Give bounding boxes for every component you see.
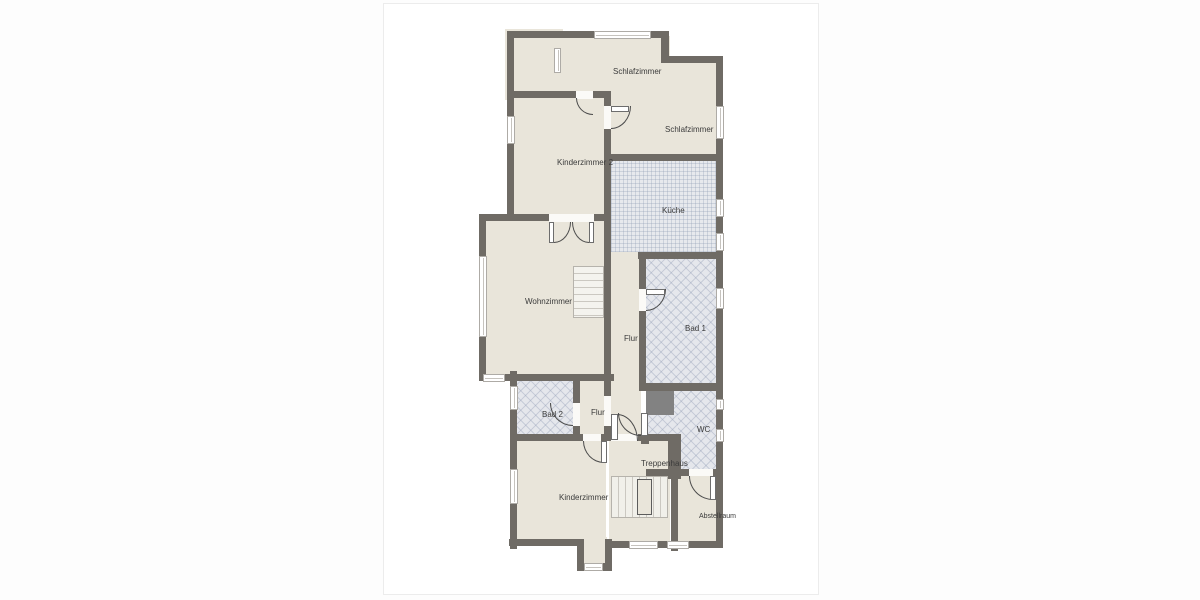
window [716,199,724,217]
wall-segment [606,154,723,161]
wall-segment [639,311,646,391]
wall-segment [604,91,611,106]
wall-segment [713,469,723,476]
window [667,541,689,549]
wall-segment [559,91,576,98]
window [554,48,561,73]
wall-segment [661,56,723,63]
window [510,469,518,504]
window [716,233,724,251]
wall-segment [573,378,580,403]
door-leaf [646,289,665,295]
window [584,563,603,571]
screenshot-root: { "page": { "card": {"x": 383, "y": 3, "… [0,0,1200,600]
window [507,116,515,144]
window [594,31,651,39]
wall-segment [511,434,583,441]
room-bad-1 [644,257,718,385]
door-leaf [601,441,607,463]
stair-core [637,479,652,515]
door-opening [604,396,611,426]
wall-segment [507,91,564,98]
door-leaf [611,414,618,440]
window [716,106,724,139]
room-flur [609,252,641,440]
floorplan-page: SchlafzimmerSchlafzimmerKinderzimmer 2Kü… [383,3,819,595]
wall-segment [604,221,611,381]
door-opening [639,289,646,311]
wall-segment [479,214,549,221]
door-opening [573,403,580,426]
stairs [573,266,604,318]
shaft [646,389,674,415]
door-leaf [710,476,716,500]
door-opening [604,106,611,129]
window [479,256,487,337]
window [629,541,658,549]
door-opening [549,214,594,222]
window [510,386,518,410]
window [716,399,724,410]
door-leaf [611,106,629,112]
floorplan-canvas: SchlafzimmerSchlafzimmerKinderzimmer 2Kü… [384,4,818,594]
window [716,288,724,309]
wall-segment [639,259,646,289]
wall-segment [509,539,584,546]
wall-segment [646,469,689,476]
wall-segment [604,129,611,221]
door-opening [583,434,601,441]
wall-segment [638,252,723,259]
window [483,374,505,382]
door-leaf [589,222,594,243]
wall-segment [594,214,606,221]
wall-segment [671,476,678,551]
door-leaf [641,413,648,436]
door-opening [689,469,713,476]
window [716,429,724,442]
wall-segment [601,434,611,441]
wall-segment [639,383,723,391]
door-leaf [549,222,554,243]
wall-segment [604,381,611,396]
